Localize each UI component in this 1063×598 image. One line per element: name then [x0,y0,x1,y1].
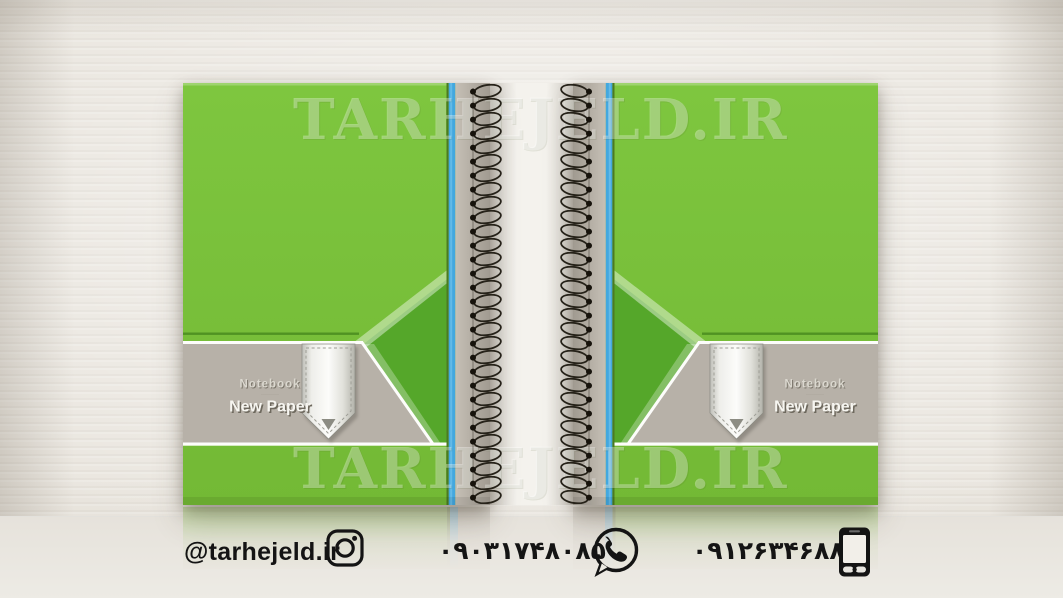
band-bottom-border [183,443,449,446]
whatsapp-icon [586,524,644,582]
spiral-binding-left [466,84,506,504]
back-cover-artwork: Notebook Notebook ········· New Paper Ne… [183,83,490,505]
instagram-handle: @tarhejeld.ir [184,538,324,567]
dark-accent-line [183,333,359,335]
back-cover-label: Notebook Notebook ········· New Paper Ne… [229,379,312,418]
band-bottom-border [613,443,879,446]
phone-number-2: ۰۹۱۲۶۳۴۶۸۸۵ [692,536,818,565]
front-cover-artwork: Notebook Notebook ········· New Paper Ne… [573,83,878,505]
front-label-brand: Notebook [784,379,845,391]
notebook-mockup-canvas: Notebook Notebook ········· New Paper Ne… [0,0,1063,598]
spiral-binding-right [556,84,596,504]
mobile-phone-icon [837,526,873,578]
phone-number-1: ۰۹۰۳۱۷۴۸۰۸۵ [438,536,580,565]
spine-edge-line [612,83,614,505]
notebook-back-cover: Notebook Notebook ········· New Paper Ne… [183,83,490,505]
band-top-border [183,341,363,344]
notebook-front-cover: Notebook Notebook ········· New Paper Ne… [573,83,878,505]
dark-accent-line [702,333,878,335]
back-label-tagline: ········· [261,392,279,398]
cover-top-highlight [183,83,490,86]
spine-edge-line [447,83,449,505]
front-cover-label: Notebook Notebook ········· New Paper Ne… [774,379,857,418]
cover-top-highlight [573,83,878,86]
cover-bottom-shade [183,497,490,505]
back-label-brand: Notebook [239,379,300,391]
spine-blue-highlight [609,83,611,505]
band-top-border [698,341,878,344]
back-label-product: New Paper [229,399,311,416]
front-label-product: New Paper [774,399,856,416]
front-label-tagline: ········· [806,392,824,398]
instagram-icon [325,528,365,568]
spine-blue-highlight [450,83,452,505]
cover-bottom-shade [573,497,878,505]
